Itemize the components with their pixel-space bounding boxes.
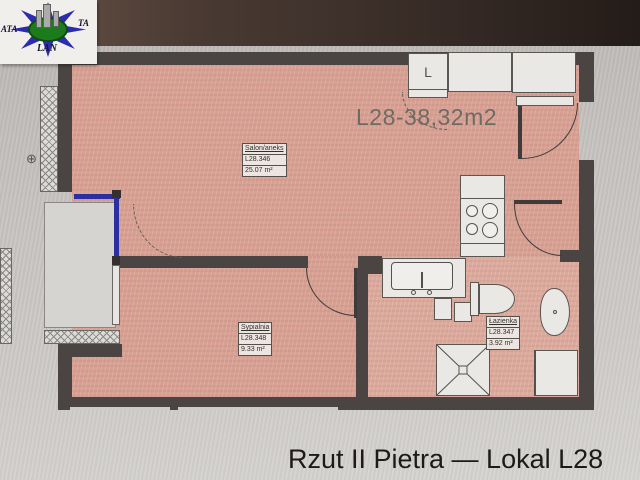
closet-fridge: L xyxy=(408,53,448,91)
room-label-bathroom: Łazienka L28.347 3.92 m² xyxy=(486,316,520,350)
wall-left-upper xyxy=(58,52,72,192)
stove-burner-4 xyxy=(482,222,498,238)
wall-bedroom-bathroom xyxy=(356,256,368,397)
room-code: L28.346 xyxy=(243,155,286,166)
toilet-tank xyxy=(470,282,479,316)
washing-machine xyxy=(534,350,578,396)
wall-salon-bedroom xyxy=(120,256,310,268)
bedroom-door-opening xyxy=(308,256,358,268)
shower-tray xyxy=(436,344,490,396)
kitchen-sink-counter xyxy=(382,258,466,298)
stove xyxy=(460,198,505,244)
insulation-hatch-upper-left xyxy=(40,86,58,192)
room-area: 9.33 m² xyxy=(239,345,271,355)
bottom-window-1 xyxy=(70,407,170,410)
shower-tray-diagonals xyxy=(437,345,489,395)
logo-text-left: ATA xyxy=(1,24,18,34)
room-area: 3.92 m² xyxy=(487,339,519,349)
room-label-salon: Salon/aneks L28.346 25.07 m² xyxy=(242,143,287,177)
company-logo: ATA TA LAN xyxy=(0,0,97,64)
wall-corner-kitchen xyxy=(356,256,382,274)
logo-text-right: TA xyxy=(78,18,89,28)
window-frame-joint-top xyxy=(112,190,121,198)
plan-caption: Rzut II Pietra — Lokal L28 xyxy=(288,444,603,475)
room-code: L28.348 xyxy=(239,334,271,345)
insulation-hatch-left-edge xyxy=(0,248,12,344)
logo-text-bottom: LAN xyxy=(37,43,57,54)
kitchen-faucet-icon xyxy=(421,272,423,288)
balcony-slab xyxy=(44,202,116,328)
room-name: Łazienka xyxy=(487,317,519,328)
floor-plan: ⊕ L xyxy=(0,0,640,480)
room-name: Salon/aneks xyxy=(243,144,286,155)
kitchen-faucet-knob-1 xyxy=(411,290,416,295)
balcony-door-leaf xyxy=(112,265,120,325)
cabinet-small-1 xyxy=(434,298,452,320)
washbasin-drain-icon xyxy=(553,310,557,314)
insulation-hatch-below-balcony xyxy=(44,330,120,344)
room-code: L28.347 xyxy=(487,328,519,339)
room-area: 25.07 m² xyxy=(243,166,286,176)
unit-title: L28-38,32m2 xyxy=(356,104,497,131)
radiator xyxy=(516,96,574,106)
stove-burner-1 xyxy=(466,205,478,217)
stove-burner-3 xyxy=(466,223,478,235)
kitchen-faucet-knob-2 xyxy=(427,290,432,295)
wall-right-upper xyxy=(579,52,594,102)
wall-right-lower xyxy=(579,160,594,410)
room-label-bedroom: Sypialnia L28.348 9.33 m² xyxy=(238,322,272,356)
closet-fridge-label: L xyxy=(424,64,432,80)
floorplan-photo: ATA TA LAN ⊕ xyxy=(0,0,640,480)
balcony-window-side xyxy=(114,194,119,262)
wall-stub-bathroom xyxy=(560,250,579,262)
room-name: Sypialnia xyxy=(239,323,271,334)
stove-burner-2 xyxy=(482,203,498,219)
logo-buildings-icon xyxy=(36,3,62,29)
closet-wardrobe-2 xyxy=(512,52,576,93)
closet-fridge-shelf xyxy=(408,89,448,98)
utility-valve-icon: ⊕ xyxy=(26,152,37,165)
closet-wardrobe-1 xyxy=(448,52,512,92)
bottom-window-2 xyxy=(178,407,338,410)
washbasin xyxy=(540,288,570,336)
